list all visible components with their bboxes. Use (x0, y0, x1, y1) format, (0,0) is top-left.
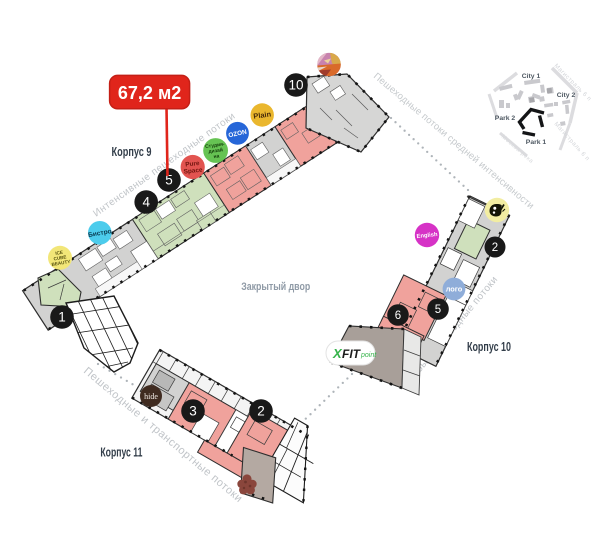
svg-text:City 1: City 1 (522, 73, 541, 80)
svg-text:Корпус 10: Корпус 10 (467, 340, 511, 354)
svg-text:Park 2: Park 2 (495, 115, 516, 122)
svg-text:2: 2 (257, 404, 265, 419)
svg-text:6: 6 (395, 310, 401, 322)
svg-text:3: 3 (189, 404, 197, 419)
svg-text:на: на (213, 153, 220, 160)
svg-text:1: 1 (58, 310, 66, 325)
svg-text:Корпус 11: Корпус 11 (100, 446, 142, 460)
svg-text:point: point (360, 352, 377, 359)
svg-text:hide: hide (144, 392, 158, 401)
svg-text:10: 10 (288, 78, 303, 93)
svg-text:лого: лого (446, 285, 463, 294)
svg-text:4: 4 (142, 195, 150, 210)
svg-text:FIT: FIT (342, 347, 362, 361)
svg-text:5: 5 (435, 304, 441, 316)
svg-text:67,2 м2: 67,2 м2 (118, 83, 181, 103)
svg-text:Park 1: Park 1 (526, 139, 547, 146)
svg-text:City 2: City 2 (557, 92, 576, 99)
svg-text:Закрытый двор: Закрытый двор (241, 281, 310, 293)
svg-text:2: 2 (492, 242, 498, 254)
svg-text:Корпус 9: Корпус 9 (112, 145, 152, 159)
